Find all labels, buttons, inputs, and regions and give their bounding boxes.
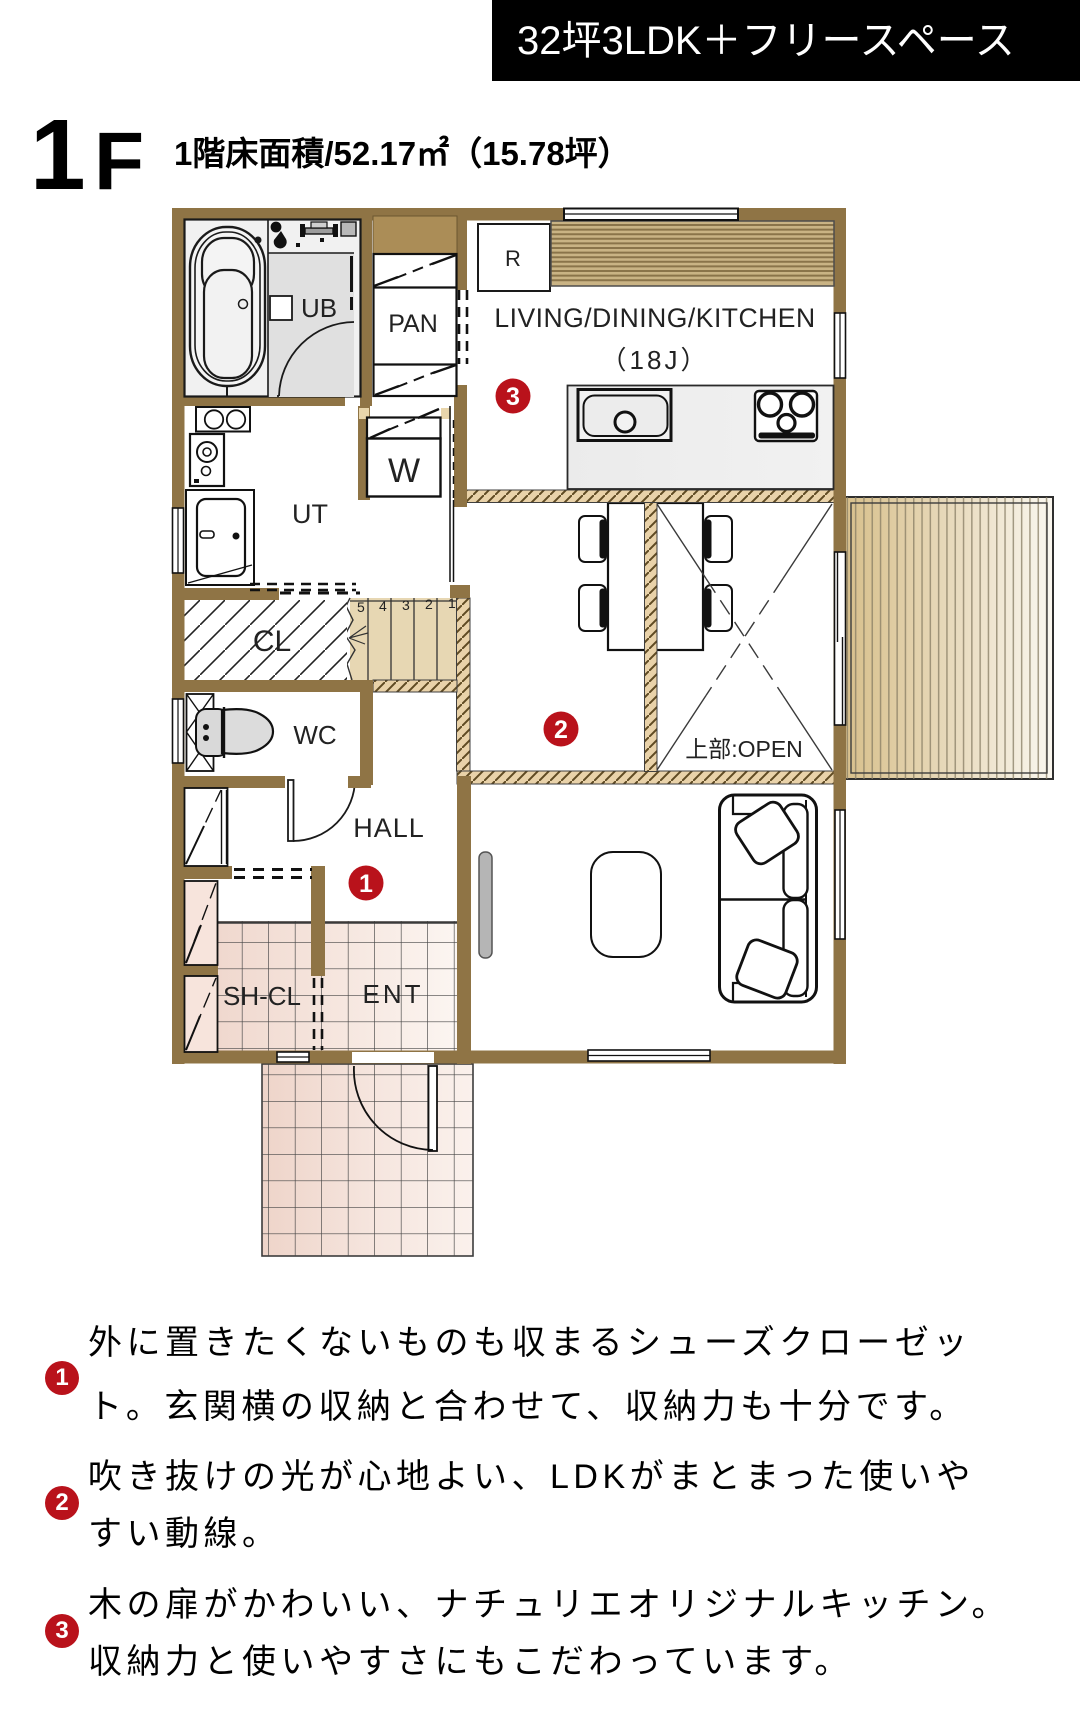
svg-text:上部:OPEN: 上部:OPEN bbox=[685, 736, 803, 762]
svg-text:（18J）: （18J） bbox=[601, 345, 710, 375]
svg-text:WC: WC bbox=[293, 720, 336, 750]
svg-text:CL: CL bbox=[253, 625, 291, 658]
svg-text:5: 5 bbox=[357, 599, 365, 615]
svg-text:HALL: HALL bbox=[353, 813, 425, 843]
svg-text:W: W bbox=[388, 452, 420, 490]
svg-text:2: 2 bbox=[425, 596, 433, 612]
svg-text:2: 2 bbox=[554, 716, 568, 744]
svg-text:1: 1 bbox=[359, 870, 373, 898]
svg-text:4: 4 bbox=[379, 598, 387, 614]
svg-text:LIVING/DINING/KITCHEN: LIVING/DINING/KITCHEN bbox=[494, 303, 815, 333]
svg-text:R: R bbox=[505, 246, 521, 271]
svg-text:3: 3 bbox=[402, 597, 410, 613]
svg-text:PAN: PAN bbox=[388, 310, 438, 338]
svg-text:3: 3 bbox=[506, 383, 520, 411]
svg-text:ENT: ENT bbox=[363, 979, 424, 1009]
svg-text:UB: UB bbox=[301, 293, 337, 323]
svg-text:UT: UT bbox=[292, 499, 328, 529]
svg-text:SH-CL: SH-CL bbox=[223, 981, 301, 1011]
